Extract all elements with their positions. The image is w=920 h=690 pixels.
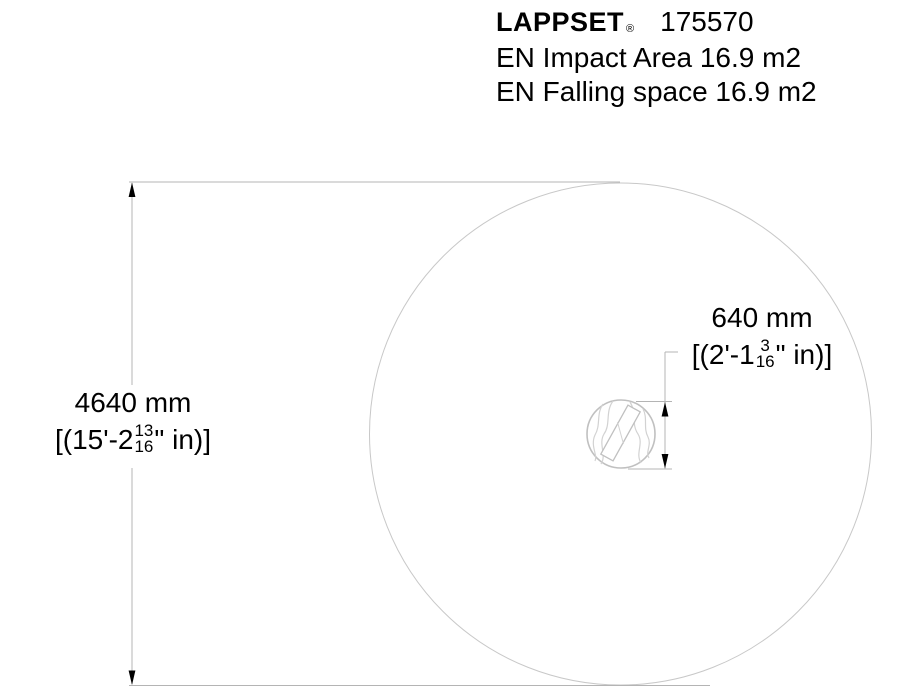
falling-space-text: EN Falling space 16.9 m2 [496, 75, 817, 109]
arrowhead-down [129, 671, 136, 686]
overall-metric-value: 4640 mm [23, 388, 243, 418]
arrowhead-up [129, 183, 136, 198]
imperial-suffix: " in)] [776, 340, 833, 370]
overall-imperial-value: [(15'-21316" in)] [23, 424, 243, 456]
drawing-canvas: LAPPSET ® 175570 EN Impact Area 16.9 m2 … [0, 0, 920, 690]
brand-row: LAPPSET ® 175570 [496, 8, 817, 36]
impact-area-text: EN Impact Area 16.9 m2 [496, 41, 817, 75]
arrowhead-up [662, 402, 669, 417]
product-number: 175570 [660, 8, 753, 36]
arrowhead-down [662, 454, 669, 469]
equipment-dimension-label: 640 mm [(2'-1316" in)] [652, 303, 872, 371]
equipment-metric-value: 640 mm [652, 303, 872, 333]
fraction-denominator: 16 [134, 439, 153, 455]
brand-logo: LAPPSET [496, 8, 624, 36]
imperial-prefix: [(2'-1 [692, 340, 755, 370]
title-block: LAPPSET ® 175570 EN Impact Area 16.9 m2 … [496, 8, 817, 109]
overall-dimension-label: 4640 mm [(15'-21316" in)] [23, 388, 243, 456]
fraction-denominator: 16 [756, 354, 775, 370]
imperial-fraction: 316 [756, 338, 775, 370]
equipment-footprint [587, 400, 655, 468]
registered-trademark-icon: ® [626, 24, 634, 35]
imperial-prefix: [(15'-2 [55, 425, 134, 455]
imperial-fraction: 1316 [134, 423, 153, 455]
imperial-suffix: " in)] [154, 425, 211, 455]
equipment-imperial-value: [(2'-1316" in)] [652, 339, 872, 371]
